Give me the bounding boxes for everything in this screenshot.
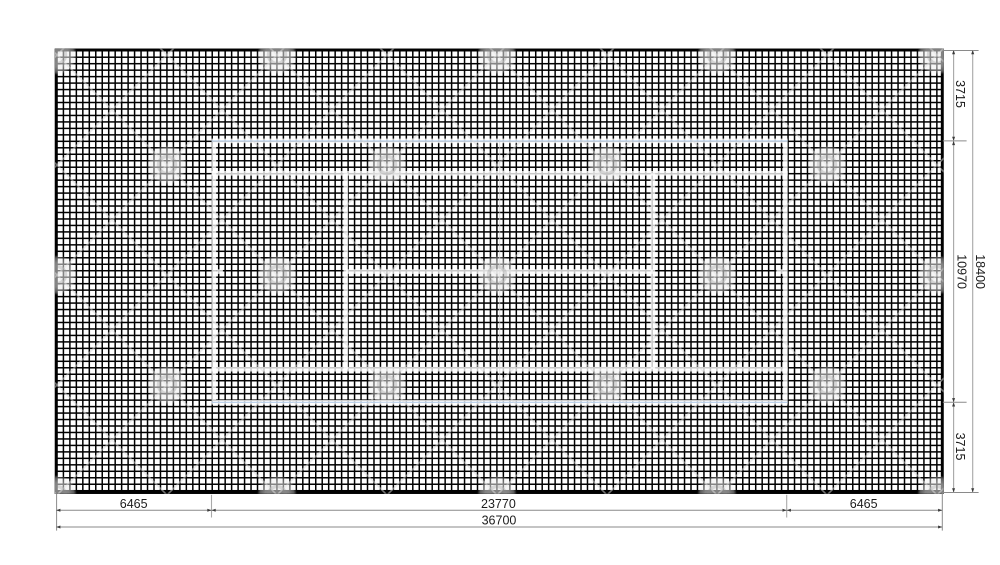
svg-text:36700: 36700 <box>482 514 517 528</box>
svg-text:3715: 3715 <box>953 433 967 461</box>
svg-text:3715: 3715 <box>953 80 967 108</box>
svg-text:6465: 6465 <box>120 497 148 511</box>
svg-text:18400: 18400 <box>973 254 987 289</box>
svg-text:23770: 23770 <box>481 497 516 511</box>
svg-text:10970: 10970 <box>955 254 969 289</box>
svg-text:6465: 6465 <box>850 497 878 511</box>
